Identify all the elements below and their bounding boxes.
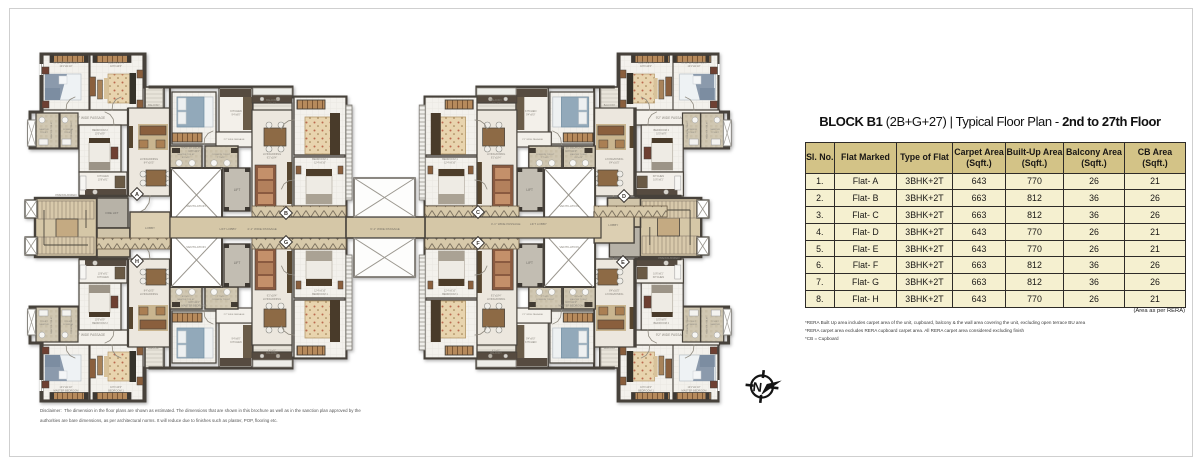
svg-text:VENTILATION: VENTILATION: [186, 204, 205, 208]
svg-text:TOILET: TOILET: [688, 321, 696, 323]
svg-text:LIFT: LIFT: [526, 188, 533, 192]
svg-text:8'0"x4'5": 8'0"x4'5": [575, 296, 584, 298]
svg-text:H: H: [135, 259, 139, 265]
svg-text:6'1"x4'2": 6'1"x4'2": [492, 350, 501, 352]
svg-text:LIFT LOBBY: LIFT LOBBY: [220, 227, 237, 231]
svg-text:BEDROOM 1: BEDROOM 1: [312, 292, 328, 296]
svg-text:KITCHEN: KITCHEN: [97, 275, 109, 279]
svg-text:E: E: [621, 260, 625, 266]
svg-text:10'0"x8'9": 10'0"x8'9": [656, 133, 667, 136]
svg-text:KITCHEN: KITCHEN: [230, 109, 242, 113]
svg-text:C: C: [476, 210, 480, 216]
svg-text:BEDROOM 1: BEDROOM 1: [108, 61, 124, 65]
svg-text:9'2" WIDE PASSAGE: 9'2" WIDE PASSAGE: [75, 116, 105, 120]
svg-text:7'7"x4'5": 7'7"x4'5": [217, 157, 226, 159]
svg-text:8'0"x4'5": 8'0"x4'5": [575, 157, 584, 159]
svg-text:8'0"x4'5": 8'0"x4'5": [182, 296, 191, 298]
svg-text:9'2"x18'4": 9'2"x18'4": [491, 295, 502, 298]
svg-text:TOILET: TOILET: [711, 321, 719, 323]
svg-text:10'1"x11'10": 10'1"x11'10": [688, 65, 701, 68]
svg-text:10'0"x11'2": 10'0"x11'2": [188, 301, 200, 304]
svg-text:VENTILATION: VENTILATION: [559, 245, 578, 249]
svg-text:6'1"x4'2": 6'1"x4'2": [268, 350, 277, 352]
svg-text:10'0"x11'2": 10'0"x11'2": [565, 301, 577, 304]
svg-text:8'4"x16'5": 8'4"x16'5": [144, 162, 155, 165]
svg-text:TOILET: TOILET: [40, 132, 48, 134]
svg-text:BALCONY: BALCONY: [490, 352, 502, 355]
svg-text:10'0"x8'9": 10'0"x8'9": [95, 319, 106, 322]
svg-text:2'2" WIDE PASSAGE: 2'2" WIDE PASSAGE: [522, 313, 543, 316]
svg-text:6'1"x4'2": 6'1"x4'2": [268, 103, 277, 105]
svg-text:4'-1" WIDE PASSAGE: 4'-1" WIDE PASSAGE: [491, 222, 521, 226]
svg-text:MASTER TOILET: MASTER TOILET: [50, 121, 53, 139]
svg-text:BEDROOM 1: BEDROOM 1: [442, 157, 458, 161]
svg-text:TOILET: TOILET: [688, 132, 696, 134]
svg-text:PRESSURIZED: PRESSURIZED: [658, 256, 680, 260]
svg-text:MASTER BEDROOM: MASTER BEDROOM: [559, 304, 584, 308]
svg-text:10'0"x8'9": 10'0"x8'9": [656, 319, 667, 322]
svg-text:10'0"x8'9": 10'0"x8'9": [95, 133, 106, 136]
svg-text:10'6"x10'0": 10'6"x10'0": [110, 386, 122, 389]
svg-text:BEDROOM 2: BEDROOM 2: [654, 321, 670, 325]
svg-text:KITCHEN: KITCHEN: [653, 174, 665, 178]
svg-text:KITCHEN: KITCHEN: [525, 340, 537, 344]
svg-text:10'6"x10'0": 10'6"x10'0": [110, 65, 122, 68]
svg-text:BALCONY: BALCONY: [148, 104, 160, 107]
svg-text:LIFT: LIFT: [234, 261, 241, 265]
svg-text:LIVING/DINING: LIVING/DINING: [605, 157, 623, 161]
svg-text:10'6"x10'0": 10'6"x10'0": [640, 386, 652, 389]
svg-text:6'1"x4'2": 6'1"x4'2": [492, 103, 501, 105]
svg-text:7'7"x4'5": 7'7"x4'5": [217, 296, 226, 298]
svg-text:4'-1" WIDE PASSAGE: 4'-1" WIDE PASSAGE: [247, 227, 277, 231]
svg-text:COMMON TOILET: COMMON TOILET: [536, 154, 555, 156]
svg-text:BEDROOM 1: BEDROOM 1: [638, 389, 654, 393]
svg-text:LIFT LOBBY: LIFT LOBBY: [530, 222, 547, 226]
svg-text:LIFT: LIFT: [526, 261, 533, 265]
svg-text:MASTER TOILET: MASTER TOILET: [705, 121, 708, 139]
svg-text:8'0"x4'5": 8'0"x4'5": [182, 157, 191, 159]
svg-text:9'4"x8'0": 9'4"x8'0": [231, 114, 240, 117]
svg-text:9'4"x8'0": 9'4"x8'0": [526, 338, 535, 341]
svg-text:8'4"x16'5": 8'4"x16'5": [609, 162, 620, 165]
svg-text:MASTER TOILET: MASTER TOILET: [50, 316, 53, 334]
svg-text:MASTER: MASTER: [39, 128, 49, 131]
svg-text:BEDROOM 2: BEDROOM 2: [92, 321, 108, 325]
svg-text:10'0"x11'2": 10'0"x11'2": [188, 150, 200, 153]
svg-text:BALCONY: BALCONY: [266, 352, 278, 355]
svg-text:LIVING/DINING: LIVING/DINING: [605, 292, 623, 296]
svg-text:LIVING/DINING: LIVING/DINING: [263, 297, 281, 301]
svg-text:BALCONY: BALCONY: [266, 99, 278, 102]
svg-text:9'4"x8'0": 9'4"x8'0": [526, 114, 535, 117]
svg-text:BEDROOM 1: BEDROOM 1: [312, 157, 328, 161]
svg-text:KITCHEN: KITCHEN: [97, 174, 109, 178]
svg-text:LOBBY: LOBBY: [145, 226, 155, 230]
svg-text:10'6"x8'1": 10'6"x8'1": [98, 273, 109, 276]
svg-text:10'6"x8'1": 10'6"x8'1": [653, 273, 664, 276]
svg-text:MASTER: MASTER: [39, 323, 49, 326]
svg-text:G: G: [284, 240, 288, 246]
svg-text:MASTER TOILET: MASTER TOILET: [570, 153, 588, 156]
svg-text:LIVING/DINING: LIVING/DINING: [487, 297, 505, 301]
svg-text:TOILET: TOILET: [40, 321, 48, 323]
svg-text:BALCONY: BALCONY: [490, 99, 502, 102]
svg-text:7'7"x4'5": 7'7"x4'5": [541, 296, 550, 298]
svg-text:FIRE LIFT: FIRE LIFT: [106, 211, 119, 215]
svg-text:COMMON: COMMON: [687, 129, 698, 131]
svg-text:10'6"x8'1": 10'6"x8'1": [653, 179, 664, 182]
svg-text:MASTER: MASTER: [711, 128, 721, 131]
svg-text:9'2" WIDE PASSAGE: 9'2" WIDE PASSAGE: [656, 116, 686, 120]
svg-text:9'2" WIDE PASSAGE: 9'2" WIDE PASSAGE: [75, 333, 105, 337]
svg-text:BALCONY: BALCONY: [604, 347, 616, 350]
svg-text:PRESSURIZED: PRESSURIZED: [55, 193, 77, 197]
svg-text:10'1"x11'10": 10'1"x11'10": [688, 386, 701, 389]
svg-text:KITCHEN: KITCHEN: [653, 275, 665, 279]
svg-text:BALCONY: BALCONY: [604, 104, 616, 107]
svg-text:MASTER BEDROOM: MASTER BEDROOM: [682, 389, 707, 393]
svg-text:6'-1" WIDE PASSAGE: 6'-1" WIDE PASSAGE: [370, 227, 400, 231]
svg-text:BEDROOM 1: BEDROOM 1: [108, 389, 124, 393]
svg-text:10'6"x10'0": 10'6"x10'0": [640, 65, 652, 68]
svg-text:B: B: [284, 211, 288, 217]
svg-text:2'2" WIDE PASSAGE: 2'2" WIDE PASSAGE: [224, 138, 245, 141]
svg-text:COMMON TOILET: COMMON TOILET: [212, 154, 231, 156]
svg-text:MASTER BEDROOM: MASTER BEDROOM: [182, 146, 207, 150]
svg-text:LIVING/DINING: LIVING/DINING: [140, 157, 158, 161]
svg-text:10'6"x8'1": 10'6"x8'1": [98, 179, 109, 182]
svg-text:LIVING/DINING: LIVING/DINING: [140, 292, 158, 296]
svg-text:MASTER: MASTER: [711, 323, 721, 326]
svg-text:LOBBY: LOBBY: [608, 223, 618, 227]
svg-text:KITCHEN: KITCHEN: [230, 340, 242, 344]
svg-text:MASTER BEDROOM: MASTER BEDROOM: [54, 389, 79, 393]
svg-text:7'7"x4'5": 7'7"x4'5": [541, 157, 550, 159]
svg-text:LIVING/DINING: LIVING/DINING: [263, 152, 281, 156]
svg-text:8'4"x16'5": 8'4"x16'5": [144, 290, 155, 293]
svg-text:9'2" WIDE PASSAGE: 9'2" WIDE PASSAGE: [656, 333, 686, 337]
svg-text:LIFT: LIFT: [234, 188, 241, 192]
svg-text:MASTER BEDROOM: MASTER BEDROOM: [54, 61, 79, 65]
svg-text:MASTER TOILET: MASTER TOILET: [177, 298, 195, 301]
svg-text:12'4"x9'10": 12'4"x9'10": [444, 290, 456, 293]
svg-text:10'1"x11'10": 10'1"x11'10": [60, 65, 73, 68]
svg-text:BEDROOM 1: BEDROOM 1: [638, 61, 654, 65]
svg-text:9'2"x18'4": 9'2"x18'4": [267, 295, 278, 298]
svg-text:MASTER TOILET: MASTER TOILET: [570, 298, 588, 301]
svg-text:10'0"x11'2": 10'0"x11'2": [565, 150, 577, 153]
svg-text:BALCONY: BALCONY: [148, 347, 160, 350]
svg-text:TOILET: TOILET: [711, 132, 719, 134]
svg-text:MASTER BEDROOM: MASTER BEDROOM: [559, 146, 584, 150]
svg-text:MASTER TOILET: MASTER TOILET: [177, 153, 195, 156]
svg-text:TOILET: TOILET: [64, 321, 72, 323]
svg-text:BEDROOM 2: BEDROOM 2: [92, 128, 108, 132]
svg-text:A: A: [135, 192, 139, 198]
svg-text:MASTER BEDROOM: MASTER BEDROOM: [682, 61, 707, 65]
svg-text:MASTER TOILET: MASTER TOILET: [705, 316, 708, 334]
svg-text:2'2" WIDE PASSAGE: 2'2" WIDE PASSAGE: [522, 138, 543, 141]
svg-text:COMMON: COMMON: [687, 324, 698, 326]
svg-text:9'2"x18'4": 9'2"x18'4": [491, 157, 502, 160]
svg-text:N: N: [752, 379, 763, 395]
svg-text:2'2" WIDE PASSAGE: 2'2" WIDE PASSAGE: [224, 313, 245, 316]
svg-text:9'4"x8'0": 9'4"x8'0": [231, 338, 240, 341]
svg-text:LIVING/DINING: LIVING/DINING: [487, 152, 505, 156]
svg-text:COMMON: COMMON: [63, 129, 74, 131]
svg-text:COMMON TOILET: COMMON TOILET: [212, 299, 231, 301]
svg-text:COMMON: COMMON: [63, 324, 74, 326]
svg-text:KITCHEN: KITCHEN: [525, 109, 537, 113]
svg-text:12'4"x9'10": 12'4"x9'10": [314, 162, 326, 165]
svg-text:VENTILATION: VENTILATION: [559, 204, 578, 208]
svg-text:TOILET: TOILET: [64, 132, 72, 134]
svg-text:D: D: [622, 194, 626, 200]
svg-text:MASTER BEDROOM: MASTER BEDROOM: [182, 304, 207, 308]
svg-text:VENTILATION: VENTILATION: [186, 245, 205, 249]
svg-text:8'4"x16'5": 8'4"x16'5": [609, 290, 620, 293]
svg-text:COMMON TOILET: COMMON TOILET: [536, 299, 555, 301]
svg-text:12'4"x9'10": 12'4"x9'10": [314, 290, 326, 293]
svg-text:9'2"x18'4": 9'2"x18'4": [267, 157, 278, 160]
svg-text:10'1"x11'10": 10'1"x11'10": [60, 386, 73, 389]
svg-text:BEDROOM 2: BEDROOM 2: [654, 128, 670, 132]
svg-text:BEDROOM 1: BEDROOM 1: [442, 292, 458, 296]
svg-text:12'4"x9'10": 12'4"x9'10": [444, 162, 456, 165]
